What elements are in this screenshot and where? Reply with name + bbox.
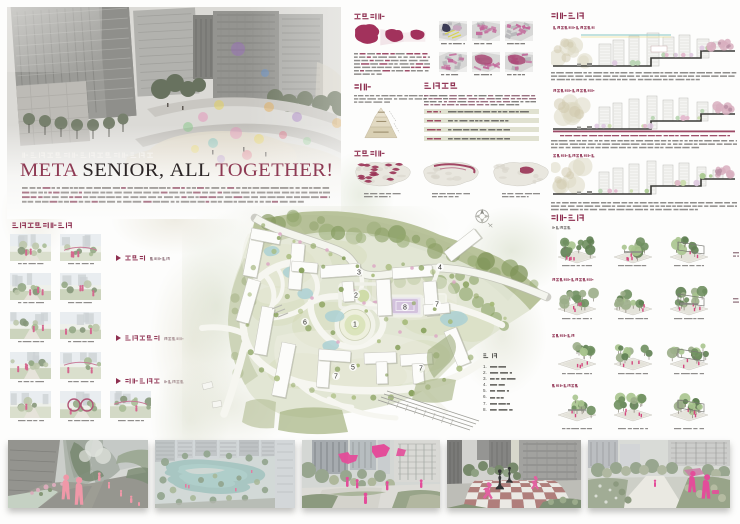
svg-text:3: 3 bbox=[357, 269, 361, 276]
svg-text:5: 5 bbox=[351, 364, 355, 371]
svg-text:2: 2 bbox=[354, 292, 358, 299]
svg-text:4: 4 bbox=[438, 264, 442, 271]
svg-text:7: 7 bbox=[435, 301, 439, 308]
svg-text:7: 7 bbox=[334, 373, 338, 380]
svg-text:6: 6 bbox=[303, 319, 307, 326]
svg-text:7: 7 bbox=[419, 365, 423, 372]
svg-text:1: 1 bbox=[353, 321, 357, 328]
svg-text:8: 8 bbox=[403, 304, 407, 311]
